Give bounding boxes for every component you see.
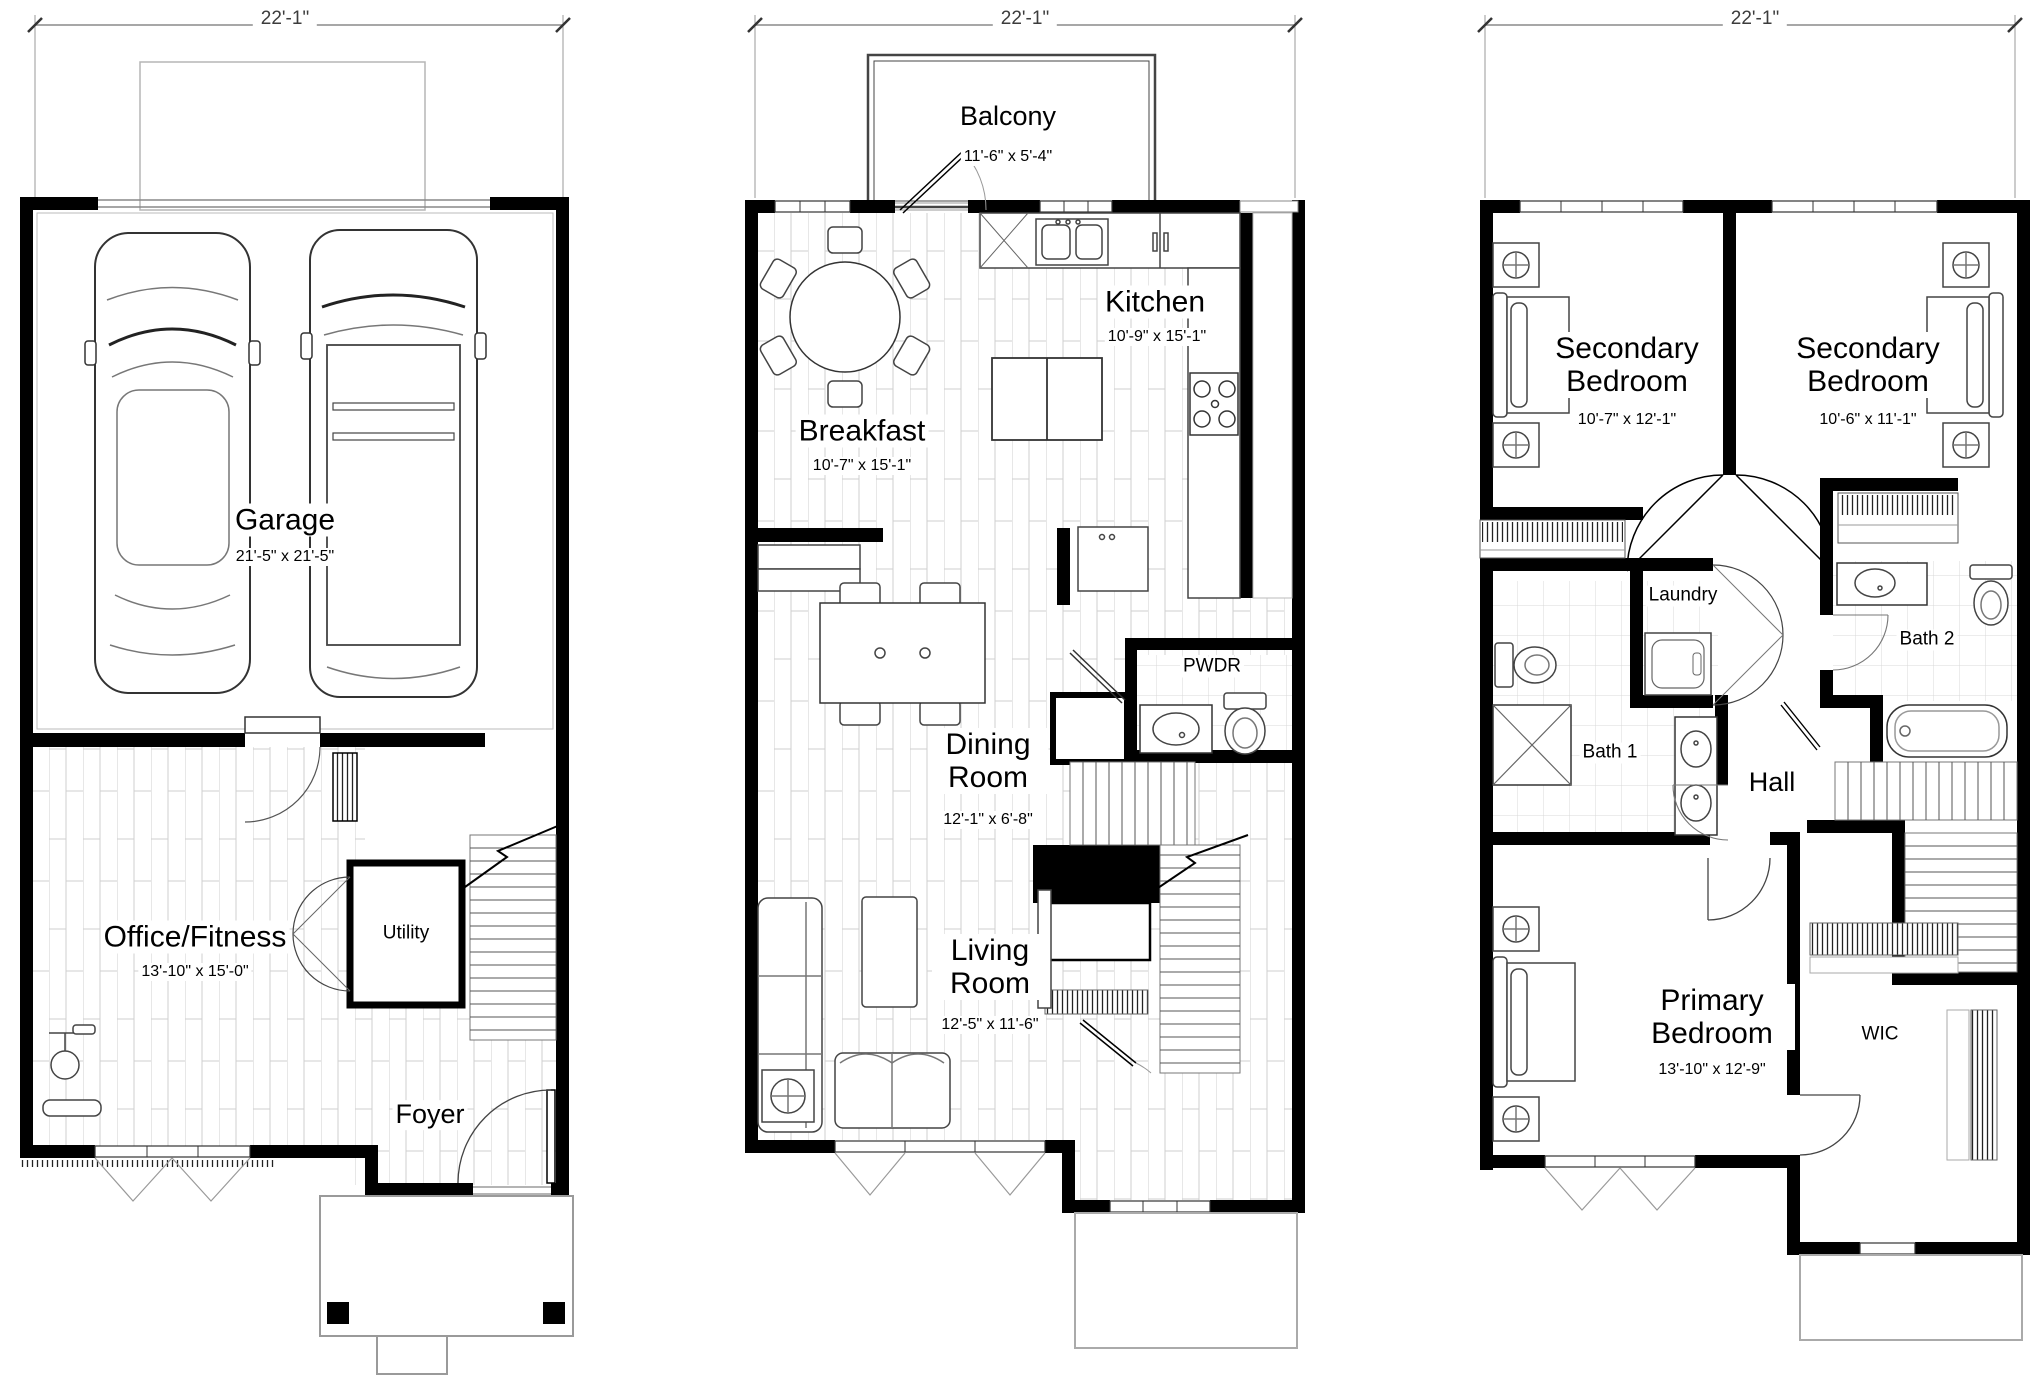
closet-right xyxy=(1838,493,1958,543)
living-room-label: Living Room xyxy=(932,934,1048,1000)
primary-bedroom-label: Primary Bedroom xyxy=(1629,984,1795,1050)
office-fitness-label: Office/Fitness xyxy=(101,921,290,954)
plant-table xyxy=(762,1070,814,1122)
balcony-dims: 11'-6" x 5'-4" xyxy=(961,148,1055,166)
laundry-label: Laundry xyxy=(1646,586,1721,607)
second-floor-plan: 22'-1" Balcony 11'-6" x 5'-4" Kitchen 10… xyxy=(740,5,1315,1390)
dining-room-dims: 12'-1" x 6'-8" xyxy=(940,811,1036,829)
kitchen-label: Kitchen xyxy=(1102,286,1208,319)
living-window xyxy=(835,1141,1045,1195)
primary-door xyxy=(1708,858,1770,920)
porch-outline xyxy=(1800,1255,2022,1340)
primary-bedroom-dims: 13'-10" x 12'-9" xyxy=(1655,1061,1768,1079)
side-chase xyxy=(1253,213,1292,598)
office-fitness-dims: 13'-10" x 15'-0" xyxy=(138,963,251,981)
closet-hatch xyxy=(333,753,357,821)
balcony-label: Balcony xyxy=(957,102,1059,132)
stairs xyxy=(465,825,560,1040)
kitchen-island xyxy=(992,358,1102,440)
bath1-label: Bath 1 xyxy=(1580,743,1641,764)
office-window xyxy=(95,1146,250,1201)
third-floor-drawing xyxy=(1465,5,2031,1390)
foyer-window xyxy=(1110,1201,1210,1212)
kitchen-dims: 10'-9" x 15'-1" xyxy=(1105,328,1209,346)
primary-window xyxy=(1545,1156,1695,1210)
dining-room-label: Dining Room xyxy=(928,728,1049,794)
car-sedan xyxy=(85,233,260,693)
dimension-label: 22'-1" xyxy=(1723,8,1787,30)
dimension-label: 22'-1" xyxy=(993,8,1057,30)
car-suv xyxy=(301,230,486,697)
dimension-line xyxy=(1478,15,2022,198)
pwdr-vanity xyxy=(1140,705,1212,753)
sill-hatch xyxy=(20,1160,275,1167)
bed-primary xyxy=(1493,907,1575,1141)
second-floor-drawing xyxy=(740,5,1315,1390)
dining-table xyxy=(820,583,985,725)
hall-label: Hall xyxy=(1746,768,1799,798)
garage-dims: 21'-5" x 21'-5" xyxy=(233,548,337,566)
breakfast-label: Breakfast xyxy=(796,415,929,448)
utility-label: Utility xyxy=(380,924,432,945)
bath2-label: Bath 2 xyxy=(1897,630,1958,651)
loveseat xyxy=(835,1053,950,1128)
beverage-cabinet xyxy=(1078,527,1148,591)
hall-door xyxy=(1781,702,1820,750)
secondary-bedroom-2-dims: 10'-6" x 11'-1" xyxy=(1816,411,1919,429)
secondary-bedroom-2-label: Secondary Bedroom xyxy=(1773,332,1964,398)
floorplan-sheet: { "colors": { "wall": "#000000", "furnit… xyxy=(0,0,2031,1392)
first-floor-drawing xyxy=(15,5,580,1390)
wic-window xyxy=(1860,1243,1915,1254)
first-floor-plan: 22'-1" Garage 21'-5" x 21'-5" Office/Fit… xyxy=(15,5,580,1390)
living-room-dims: 12'-5" x 11'-6" xyxy=(938,1016,1041,1034)
porch-outline xyxy=(1075,1213,1297,1348)
pwdr-toilet xyxy=(1224,693,1266,754)
secondary-bedroom-1-label: Secondary Bedroom xyxy=(1532,332,1723,398)
garage-door xyxy=(98,200,490,207)
coffee-table xyxy=(862,897,917,1007)
foyer-label: Foyer xyxy=(392,1100,467,1130)
dimension-label: 22'-1" xyxy=(253,8,317,30)
closet-left xyxy=(1480,520,1625,558)
driveway xyxy=(140,62,425,210)
pwdr-label: PWDR xyxy=(1180,657,1244,678)
bedroom-doors xyxy=(1627,475,1832,571)
wic-label: WIC xyxy=(1859,1025,1902,1046)
garage-label: Garage xyxy=(232,504,338,537)
wic-door xyxy=(1800,1095,1860,1155)
dimension-line xyxy=(28,15,570,198)
third-floor-plan: 22'-1" Secondary Bedroom 10'-7" x 12'-1"… xyxy=(1465,5,2031,1390)
porch xyxy=(320,1196,573,1374)
secondary-bedroom-1-dims: 10'-7" x 12'-1" xyxy=(1575,411,1679,429)
breakfast-dims: 10'-7" x 15'-1" xyxy=(810,457,914,475)
